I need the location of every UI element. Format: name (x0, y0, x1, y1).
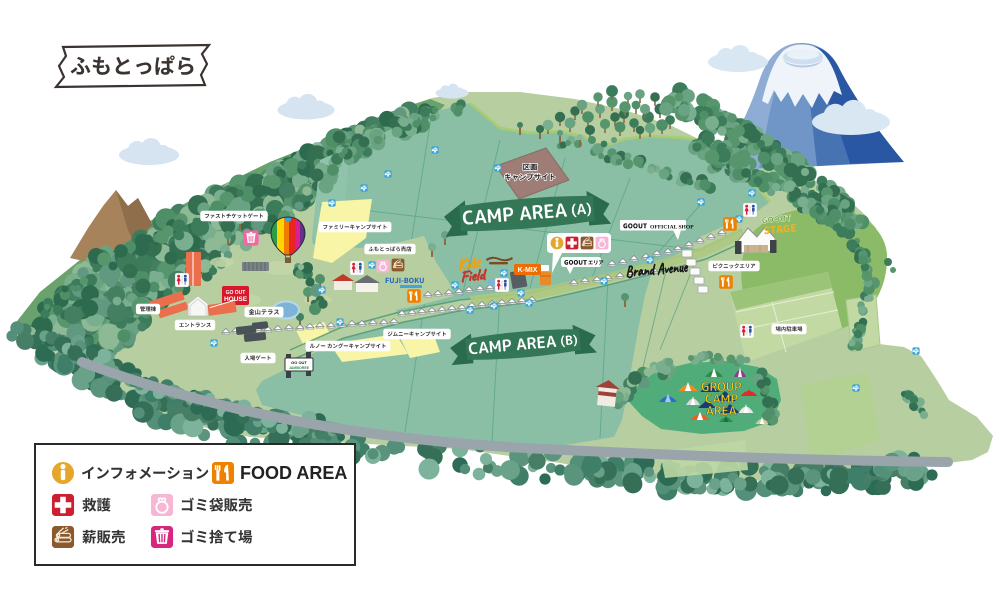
svg-text:GO OUT: GO OUT (291, 360, 307, 365)
svg-text:FOOD AREA: FOOD AREA (240, 463, 347, 483)
svg-text:K-MIX: K-MIX (518, 267, 538, 274)
svg-text:JAMBOREE: JAMBOREE (289, 366, 310, 370)
svg-text:OFFICIAL SHOP: OFFICIAL SHOP (650, 224, 694, 230)
